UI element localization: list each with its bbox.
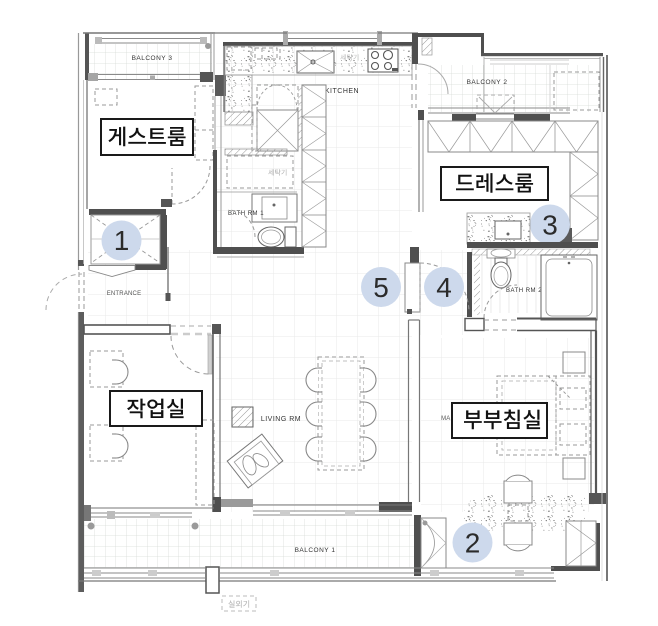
svg-text:BALCONY 1: BALCONY 1 <box>295 547 336 554</box>
svg-text:1: 1 <box>114 225 130 256</box>
svg-text:ENTRANCE: ENTRANCE <box>107 291 142 297</box>
svg-text:LIVING RM: LIVING RM <box>261 416 301 423</box>
svg-text:BALCONY 2: BALCONY 2 <box>467 79 508 86</box>
svg-text:4: 4 <box>436 272 452 303</box>
svg-text:BATH RM 2: BATH RM 2 <box>506 288 542 294</box>
svg-text:BATH RM 1: BATH RM 1 <box>228 211 264 217</box>
svg-text:MA: MA <box>441 416 450 422</box>
svg-text:2: 2 <box>465 528 481 559</box>
svg-text:BALCONY 3: BALCONY 3 <box>132 55 173 62</box>
svg-text:5: 5 <box>373 272 389 303</box>
svg-text:KITCHEN: KITCHEN <box>325 88 359 95</box>
svg-text:3: 3 <box>542 210 558 241</box>
